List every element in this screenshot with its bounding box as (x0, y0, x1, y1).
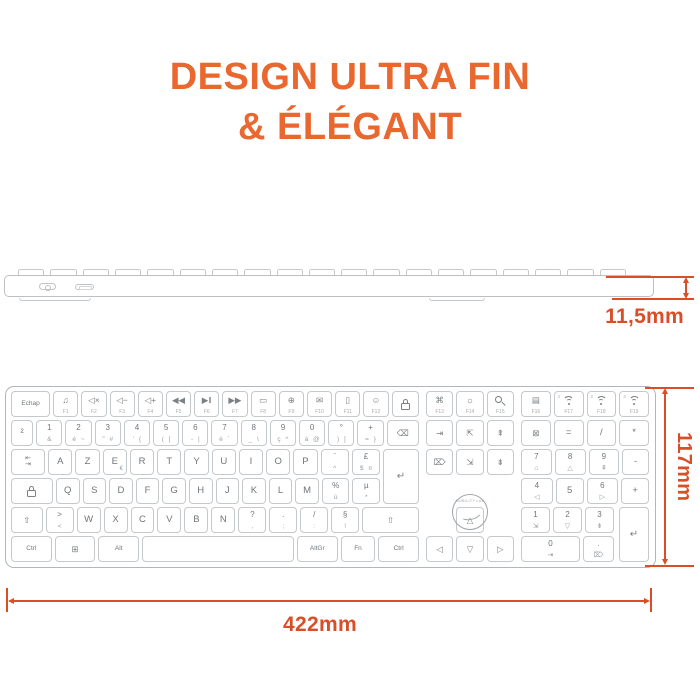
key-num-lock[interactable]: ⊠ (521, 420, 551, 446)
main-block: ⇤ ⇥AZE€RTYUIOP¨^£$ ¤ (11, 449, 419, 475)
key-sublabel: ; (282, 523, 284, 530)
key-8[interactable]: 8_ \ (241, 420, 267, 446)
num-block: 4◁56▷+ (521, 478, 649, 504)
key-label: £ (364, 453, 368, 461)
key-label: 1 (533, 511, 537, 519)
fkey-label: F1 (54, 410, 77, 415)
key-num-5[interactable]: 5 (556, 478, 584, 504)
width-arrow-line (11, 600, 647, 602)
fkey-label: F9 (280, 410, 303, 415)
main-block: ⇧><WXCVBN?,.;/:§!⇧ (11, 507, 419, 533)
left-icon: ◁ (534, 494, 539, 501)
key-+[interactable]: += } (357, 420, 383, 446)
key-ctrl-right[interactable]: Ctrl (378, 536, 419, 562)
key-lock[interactable] (392, 391, 420, 417)
key-num-plus[interactable]: + (621, 478, 649, 504)
key-altgr-label: € (120, 466, 123, 472)
key-label: 6 (600, 482, 604, 490)
logo-text: MOBILITY LAB (453, 499, 487, 503)
key-label: 7 (534, 453, 538, 461)
key-f18[interactable]: 2F18 (587, 391, 617, 417)
key-space[interactable] (142, 536, 294, 562)
window-icon: ▭ (259, 396, 267, 405)
key-label: 3 (105, 424, 109, 432)
search-icon (495, 396, 505, 406)
main-block: Ctrl⊞AltAltGrFnCtrl (11, 536, 419, 562)
key-label: . (597, 540, 599, 548)
keyboard-side-view (4, 269, 654, 297)
height-label: 117mm (672, 432, 695, 501)
key-label: * (632, 428, 636, 438)
key-label: E (112, 457, 118, 467)
key-label: 0 (310, 424, 314, 432)
key-label: + (632, 486, 638, 496)
thickness-tick-top (606, 276, 694, 278)
key-page-down[interactable]: ⇟ (487, 449, 514, 475)
main-block: Echap♫F1◁×F2◁−F3◁+F4◀◀F5▶‖F6▶▶F7▭F8⊕F9✉F… (11, 391, 419, 417)
key-label: P (302, 457, 308, 467)
key-num-multiply[interactable]: * (619, 420, 649, 446)
key-°[interactable]: °) ] (328, 420, 354, 446)
key-label: C (139, 515, 146, 525)
keyboard-row: QSDFGHJKLM%ùµ*4◁56▷+ (11, 478, 650, 504)
key-label: Ctrl (26, 544, 36, 554)
key-label: A (57, 457, 63, 467)
key-enter[interactable]: ↵ (383, 449, 419, 504)
key-label: F (145, 486, 151, 496)
keyboard-top-view: Echap♫F1◁×F2◁−F3◁+F4◀◀F5▶‖F6▶▶F7▭F8⊕F9✉F… (5, 386, 656, 568)
home-icon: ⌂ (534, 465, 538, 472)
key-sublabel: < (58, 523, 62, 530)
key-sublabel: = } (365, 436, 376, 443)
pageup-icon: ⇞ (601, 465, 607, 472)
key-q[interactable]: Q (56, 478, 80, 504)
channel-number: 1 (558, 394, 561, 399)
nav-block: ◁▽▷ (426, 536, 514, 562)
homecorner-icon: ⇱ (466, 429, 473, 438)
key-1[interactable]: 1& (36, 420, 62, 446)
height-tick-top (645, 387, 694, 389)
key-sublabel: & (47, 436, 51, 443)
key-label: O (275, 457, 282, 467)
mail-icon: ✉ (316, 396, 323, 405)
keyboard-row: ⇧><WXCVBN?,.;/:§!⇧△1⇲2▽3⇟ (11, 507, 650, 533)
key-label: + (368, 424, 373, 432)
shift-icon: ⇧ (387, 516, 394, 525)
key-label: 5 (164, 424, 168, 432)
key-r[interactable]: R (130, 449, 154, 475)
key-sublabel: , (251, 523, 253, 530)
key-u[interactable]: U (212, 449, 236, 475)
fkey-label: F15 (488, 410, 513, 415)
right-icon: ▷ (497, 545, 504, 554)
height-arrowhead-down (662, 559, 668, 565)
fkey-label: F4 (139, 410, 162, 415)
key-label: W (84, 515, 93, 525)
key-label: 0 (548, 540, 552, 548)
key-label: µ (364, 482, 369, 490)
key-m[interactable]: M (295, 478, 319, 504)
key-f13[interactable]: ⌘F13 (426, 391, 453, 417)
volup-icon: ◁+ (145, 396, 157, 405)
key-label: D (117, 486, 124, 496)
height-tick-bottom (645, 565, 694, 567)
key-num-decimal[interactable]: .⌦ (583, 536, 614, 562)
key-label: Y (193, 457, 199, 467)
key-num-4[interactable]: 4◁ (521, 478, 553, 504)
key-f8[interactable]: ▭F8 (251, 391, 276, 417)
right-icon: ▷ (600, 494, 605, 501)
pagedown-icon: ⇟ (497, 458, 504, 467)
key-sublabel: " # (102, 436, 113, 443)
key-sublabel: _ \ (249, 436, 259, 443)
fkey-label: F11 (336, 410, 359, 415)
key-label: L (278, 486, 283, 496)
key-label: AltGr (310, 544, 325, 554)
key-label: 7 (222, 424, 226, 432)
lock-icon (401, 399, 410, 410)
key-question-comma[interactable]: ?, (238, 507, 266, 533)
key-label: 1 (47, 424, 51, 432)
key-label: / (600, 428, 603, 438)
key-label: . (282, 511, 284, 519)
key-7[interactable]: 7è ` (211, 420, 237, 446)
key-label: = (566, 428, 572, 438)
key-d[interactable]: D (109, 478, 133, 504)
key-sublabel: è ` (219, 436, 230, 443)
key-b[interactable]: B (184, 507, 208, 533)
key-f5[interactable]: ◀◀F5 (166, 391, 191, 417)
key-num-equals[interactable]: = (554, 420, 584, 446)
key-alt[interactable]: Alt (98, 536, 139, 562)
key-sublabel: ) ] (337, 436, 346, 443)
fkey-label: F17 (555, 410, 583, 415)
key-micro-asterisk[interactable]: µ* (352, 478, 380, 504)
width-arrowhead-left (8, 598, 14, 604)
keyboard-row: Echap♫F1◁×F2◁−F3◁+F4◀◀F5▶‖F6▶▶F7▭F8⊕F9✉F… (11, 391, 650, 417)
key-sublabel: * (365, 494, 368, 501)
up-icon: △ (567, 465, 572, 472)
key-sublabel: $ ¤ (360, 465, 372, 472)
pagedown-icon: ⇟ (597, 523, 603, 530)
fkey-label: F10 (308, 410, 331, 415)
key-sublabel: ( [ (162, 436, 171, 443)
key-f2[interactable]: ◁×F2 (81, 391, 106, 417)
key-label: ¨ (333, 453, 336, 461)
channel-number: 2 (591, 394, 594, 399)
key-f4[interactable]: ◁+F4 (138, 391, 163, 417)
win-icon: ⊞ (71, 545, 78, 554)
key-label: 8 (252, 424, 256, 432)
fkey-label: F19 (620, 410, 648, 415)
key-z[interactable]: Z (75, 449, 99, 475)
key-label: T (166, 457, 172, 467)
key-sublabel: à @ (305, 436, 320, 443)
wifi-icon (629, 396, 640, 405)
key-ctrl-left[interactable]: Ctrl (11, 536, 52, 562)
key-label: 4 (135, 424, 139, 432)
key-label: 4 (535, 482, 539, 490)
key-delete[interactable]: ⌦ (426, 449, 453, 475)
enter-icon: ↵ (630, 530, 638, 539)
key-label: R (139, 457, 146, 467)
key-label: ° (340, 424, 343, 432)
key-p[interactable]: P (293, 449, 317, 475)
num-block: ⊠=/* (521, 420, 649, 446)
key-slash-colon[interactable]: /: (300, 507, 328, 533)
width-label: 422mm (283, 613, 357, 637)
nav-block: ⌦⇲⇟ (426, 449, 514, 475)
fkey-label: F13 (427, 410, 452, 415)
next-icon: ▶▶ (228, 396, 241, 405)
key-x[interactable]: X (104, 507, 128, 533)
key-label: X (112, 515, 118, 525)
key-label: Ctrl (394, 544, 404, 554)
key-label: V (166, 515, 172, 525)
key-altgr[interactable]: AltGr (297, 536, 338, 562)
usb-c-port-icon (75, 284, 94, 290)
key-4[interactable]: 4' { (124, 420, 150, 446)
key-label: ² (21, 428, 24, 438)
down-icon: ▽ (467, 545, 474, 554)
key-arrow-right[interactable]: ▷ (487, 536, 514, 562)
key-f17[interactable]: 1F17 (554, 391, 584, 417)
key-f16[interactable]: ▤F16 (521, 391, 551, 417)
key-sublabel: ' { (133, 436, 141, 443)
key-label: H (197, 486, 204, 496)
key-h[interactable]: H (189, 478, 213, 504)
fkey-label: F12 (364, 410, 387, 415)
key-num-9[interactable]: 9⇞ (589, 449, 620, 475)
emoji-icon: ☺ (372, 396, 381, 405)
width-tick-right (650, 588, 652, 612)
key-label: U (220, 457, 227, 467)
key-5[interactable]: 5( [ (153, 420, 179, 446)
del-icon: ⌦ (434, 458, 446, 467)
keyboard-foot (429, 298, 485, 302)
title-line-2: & ÉLÉGANT (0, 102, 700, 152)
keyboard-row: Ctrl⊞AltAltGrFnCtrl◁▽▷0⇥.⌦ (11, 536, 650, 562)
tab-icon: ⇤ ⇥ (25, 456, 31, 468)
key-6[interactable]: 6- | (182, 420, 208, 446)
key-0[interactable]: 0à @ (299, 420, 325, 446)
backspace-icon: ⌫ (397, 429, 409, 438)
key-f[interactable]: F (136, 478, 160, 504)
keyboard-foot (19, 298, 91, 302)
main-block: QSDFGHJKLM%ùµ* (11, 478, 419, 504)
endcorner-icon: ⇲ (533, 523, 539, 530)
down-icon: ▽ (565, 523, 570, 530)
prev-icon: ◀◀ (172, 396, 185, 405)
key-diaeresis[interactable]: ¨^ (321, 449, 349, 475)
thickness-arrowhead-down (683, 293, 689, 299)
key-percent-u[interactable]: %ù (322, 478, 350, 504)
key-num-1[interactable]: 1⇲ (521, 507, 550, 533)
key-f7[interactable]: ▶▶F7 (222, 391, 247, 417)
key-windows[interactable]: ⊞ (55, 536, 96, 562)
key-f6[interactable]: ▶‖F6 (194, 391, 219, 417)
key-o[interactable]: O (266, 449, 290, 475)
key-num-8[interactable]: 8△ (555, 449, 586, 475)
key-echap[interactable]: Echap (11, 391, 50, 417)
key-num-3[interactable]: 3⇟ (585, 507, 614, 533)
nav-block: ⌘F13☼F14F15 (426, 391, 514, 417)
key-num-0[interactable]: 0⇥ (521, 536, 580, 562)
nav-block: ⇥⇱⇞ (426, 420, 514, 446)
shift-icon: ⇧ (23, 516, 30, 525)
key-backspace[interactable]: ⌫ (387, 420, 419, 446)
key-period-semicolon[interactable]: .; (269, 507, 297, 533)
fkey-label: F18 (588, 410, 616, 415)
key-shift-left[interactable]: ⇧ (11, 507, 43, 533)
key-a[interactable]: A (48, 449, 72, 475)
key-w[interactable]: W (77, 507, 101, 533)
key-3[interactable]: 3" # (95, 420, 121, 446)
numlock-icon: ⊠ (532, 429, 539, 438)
key-label: Echap (21, 399, 39, 409)
key-label: 2 (565, 511, 569, 519)
key-label: 6 (193, 424, 197, 432)
key-f3[interactable]: ◁−F3 (110, 391, 135, 417)
key-t[interactable]: T (157, 449, 181, 475)
key-pound-dollar[interactable]: £$ ¤ (352, 449, 380, 475)
key-angle-brackets[interactable]: >< (46, 507, 74, 533)
key-f10[interactable]: ✉F10 (307, 391, 332, 417)
key-label: 5 (567, 486, 572, 496)
channel-number: 3 (623, 394, 626, 399)
key-label: § (343, 511, 347, 519)
printer-icon: ▤ (532, 396, 540, 405)
key-fn[interactable]: Fn (341, 536, 376, 562)
key-e[interactable]: E€ (103, 449, 127, 475)
phone-icon: ▯ (345, 396, 350, 405)
key-sublabel: ç ^ (277, 436, 288, 443)
key-label: Fn (354, 544, 362, 554)
num-block: ▤F161F172F183F19 (521, 391, 649, 417)
key-page-up[interactable]: ⇞ (487, 420, 514, 446)
key-v[interactable]: V (157, 507, 181, 533)
key-sublabel: ù (334, 494, 338, 501)
backlight-icon: ☼ (466, 396, 474, 405)
key-label: % (332, 482, 339, 490)
page-title: DESIGN ULTRA FIN & ÉLÉGANT (0, 52, 700, 152)
key-end[interactable]: ⇲ (456, 449, 483, 475)
play-icon: ▶‖ (202, 396, 212, 405)
endcorner-icon: ⇲ (466, 458, 473, 467)
key-f12[interactable]: ☺F12 (363, 391, 388, 417)
fkey-label: F5 (167, 410, 190, 415)
key-sublabel: : (313, 523, 315, 530)
key-label: 3 (597, 511, 601, 519)
key-arrow-left[interactable]: ◁ (426, 536, 453, 562)
key-label: > (57, 511, 62, 519)
key-g[interactable]: G (162, 478, 186, 504)
key-label: Z (85, 457, 91, 467)
key-f9[interactable]: ⊕F9 (279, 391, 304, 417)
key-arrow-down[interactable]: ▽ (456, 536, 483, 562)
key-num-divide[interactable]: / (587, 420, 617, 446)
mobility-lab-logo: MOBILITY LAB (452, 494, 488, 530)
key-num-6[interactable]: 6▷ (587, 478, 619, 504)
key-label: S (91, 486, 97, 496)
key-superscript-2[interactable]: ² (11, 420, 33, 446)
key-label: 9 (281, 424, 285, 432)
fkey-label: F6 (195, 410, 218, 415)
pageup-icon: ⇞ (497, 429, 504, 438)
music-icon: ♫ (63, 396, 69, 405)
mute-icon: ◁× (88, 396, 100, 405)
key-section-exclamation[interactable]: §! (331, 507, 359, 533)
fkey-label: F16 (522, 410, 550, 415)
key-f1[interactable]: ♫F1 (53, 391, 78, 417)
key-sublabel: é ~ (72, 436, 84, 443)
key-2[interactable]: 2é ~ (65, 420, 91, 446)
key-label: ? (250, 511, 254, 519)
key-l[interactable]: L (269, 478, 293, 504)
thickness-arrowhead-up (683, 277, 689, 283)
key-insert[interactable]: ⇥ (426, 420, 453, 446)
del-icon: ⌦ (593, 552, 603, 559)
power-switch-icon (39, 283, 56, 290)
key-label: M (303, 486, 311, 496)
key-label: G (170, 486, 177, 496)
key-num-minus[interactable]: - (622, 449, 649, 475)
title-line-1: DESIGN ULTRA FIN (0, 52, 700, 102)
key-j[interactable]: J (216, 478, 240, 504)
fkey-label: F14 (457, 410, 482, 415)
key-i[interactable]: I (239, 449, 263, 475)
key-num-7[interactable]: 7⌂ (521, 449, 552, 475)
wifi-icon (563, 396, 574, 405)
key-num-2[interactable]: 2▽ (553, 507, 582, 533)
fkey-label: F7 (223, 410, 246, 415)
key-tab[interactable]: ⇤ ⇥ (11, 449, 45, 475)
key-sublabel: ^ (333, 465, 336, 472)
key-c[interactable]: C (131, 507, 155, 533)
key-label: 8 (568, 453, 572, 461)
insert-icon: ⇥ (436, 429, 443, 438)
key-k[interactable]: K (242, 478, 266, 504)
key-y[interactable]: Y (184, 449, 208, 475)
key-label: / (313, 511, 315, 519)
key-shift-right[interactable]: ⇧ (362, 507, 419, 533)
height-arrow-line (664, 391, 666, 562)
key-n[interactable]: N (211, 507, 235, 533)
main-block: ²1&2é ~3" #4' {5( [6- |7è `8_ \9ç ^0à @°… (11, 420, 419, 446)
voldown-icon: ◁− (116, 396, 128, 405)
key-f15[interactable]: F15 (487, 391, 514, 417)
key-f14[interactable]: ☼F14 (456, 391, 483, 417)
wifi-icon (596, 396, 607, 405)
fkey-label: F2 (82, 410, 105, 415)
key-num-enter[interactable]: ↵ (619, 507, 649, 562)
key-f19[interactable]: 3F19 (619, 391, 649, 417)
key-caps-lock[interactable] (11, 478, 53, 504)
key-label: - (634, 457, 637, 467)
key-label: Q (64, 486, 71, 496)
key-s[interactable]: S (83, 478, 107, 504)
thickness-label: 11,5mm (605, 305, 684, 329)
key-label: 2 (76, 424, 80, 432)
key-label: N (220, 515, 227, 525)
key-f11[interactable]: ▯F11 (335, 391, 360, 417)
key-home[interactable]: ⇱ (456, 420, 483, 446)
key-9[interactable]: 9ç ^ (270, 420, 296, 446)
key-label: Alt (115, 544, 123, 554)
caps-icon (27, 486, 36, 497)
key-label: J (225, 486, 230, 496)
fkey-label: F8 (252, 410, 275, 415)
